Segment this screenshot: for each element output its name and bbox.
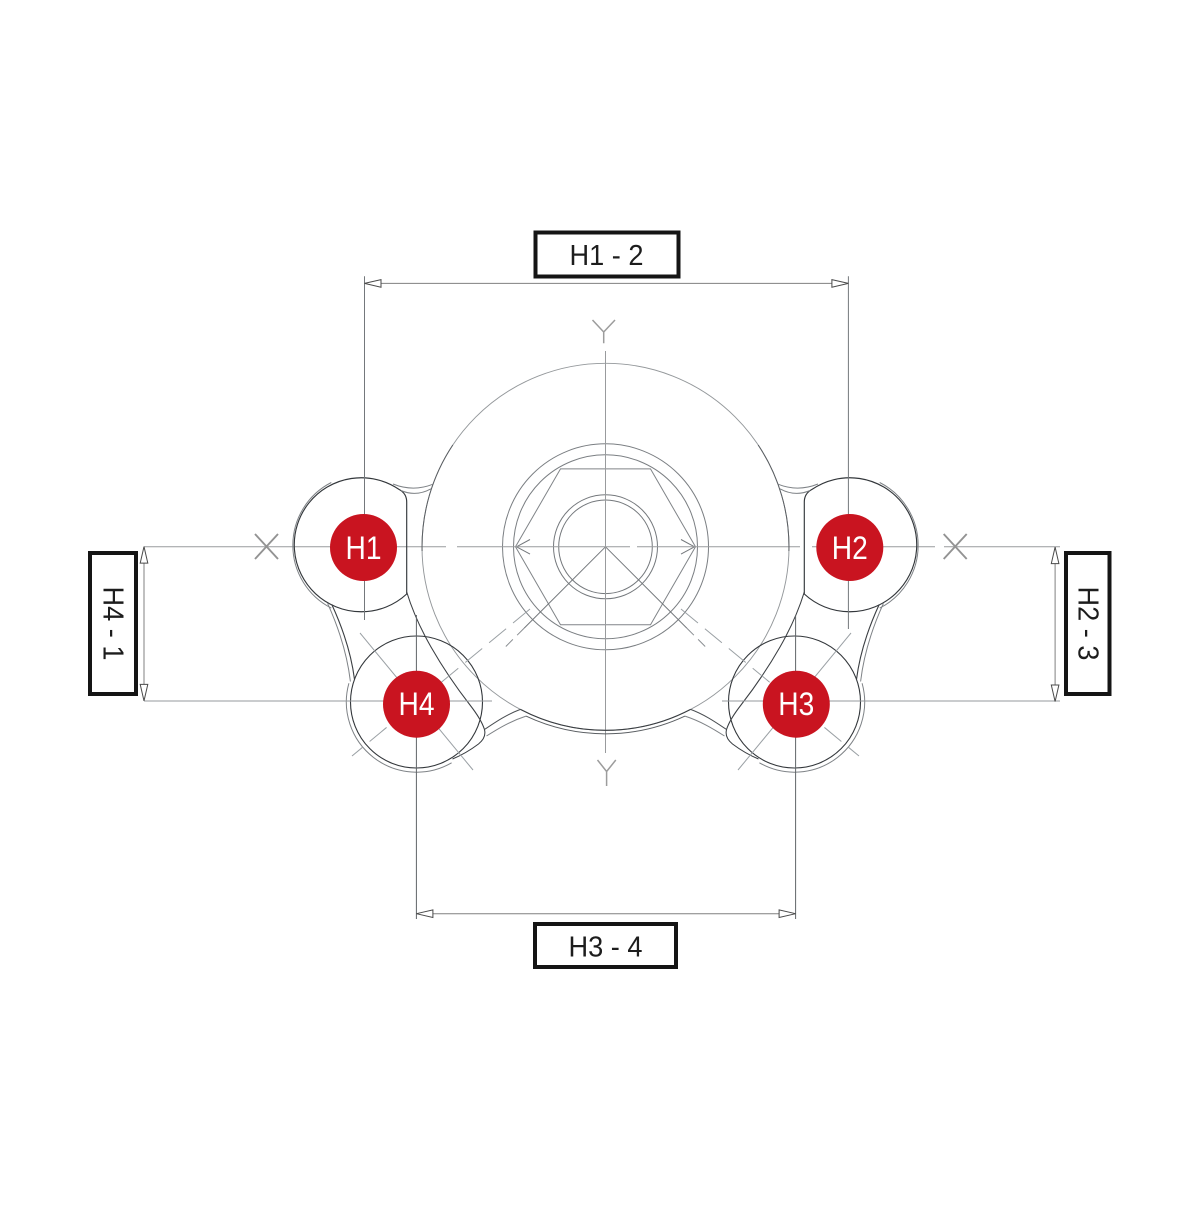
- svg-text:H2 - 3: H2 - 3: [1072, 587, 1104, 661]
- svg-text:H4 - 1: H4 - 1: [97, 587, 129, 661]
- svg-text:H3 - 4: H3 - 4: [569, 931, 643, 963]
- svg-text:H4: H4: [399, 686, 435, 722]
- svg-text:H1: H1: [346, 530, 382, 566]
- svg-text:H3: H3: [778, 686, 814, 722]
- svg-text:H2: H2: [832, 530, 868, 566]
- svg-text:H1 - 2: H1 - 2: [570, 240, 644, 272]
